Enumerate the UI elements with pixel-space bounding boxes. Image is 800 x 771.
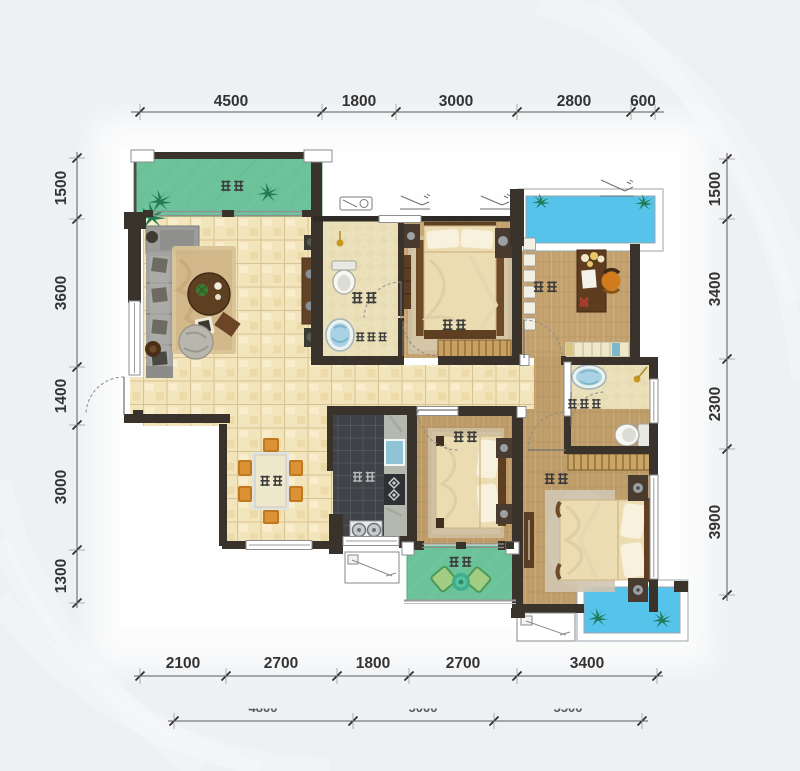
svg-text:1800: 1800 xyxy=(356,655,390,672)
svg-text:2800: 2800 xyxy=(557,93,591,110)
svg-text:3400: 3400 xyxy=(570,655,604,672)
svg-text:2700: 2700 xyxy=(446,655,480,672)
svg-text:4500: 4500 xyxy=(214,93,248,110)
svg-text:2300: 2300 xyxy=(707,387,724,421)
svg-text:3400: 3400 xyxy=(707,272,724,306)
svg-text:2100: 2100 xyxy=(166,655,200,672)
svg-text:600: 600 xyxy=(630,93,656,110)
svg-text:1500: 1500 xyxy=(707,172,724,206)
svg-text:2700: 2700 xyxy=(264,655,298,672)
svg-text:3900: 3900 xyxy=(707,505,724,539)
svg-text:1500: 1500 xyxy=(53,171,70,205)
svg-text:1400: 1400 xyxy=(53,379,70,413)
svg-text:3000: 3000 xyxy=(53,470,70,504)
svg-text:1300: 1300 xyxy=(53,559,70,593)
svg-text:1800: 1800 xyxy=(342,93,376,110)
svg-text:3600: 3600 xyxy=(53,276,70,310)
svg-text:3000: 3000 xyxy=(439,93,473,110)
